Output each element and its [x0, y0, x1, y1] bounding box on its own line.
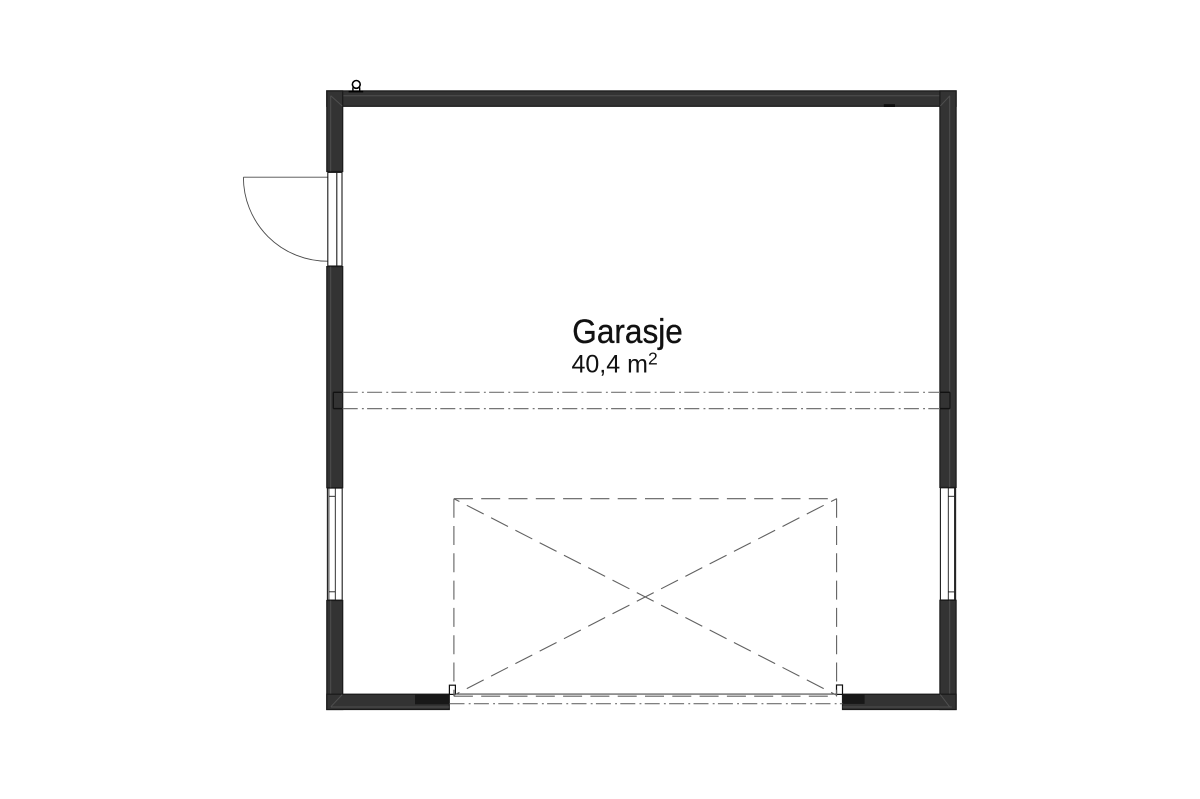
svg-text:40,4 m2: 40,4 m2	[572, 349, 658, 379]
svg-text:Garasje: Garasje	[572, 313, 683, 351]
